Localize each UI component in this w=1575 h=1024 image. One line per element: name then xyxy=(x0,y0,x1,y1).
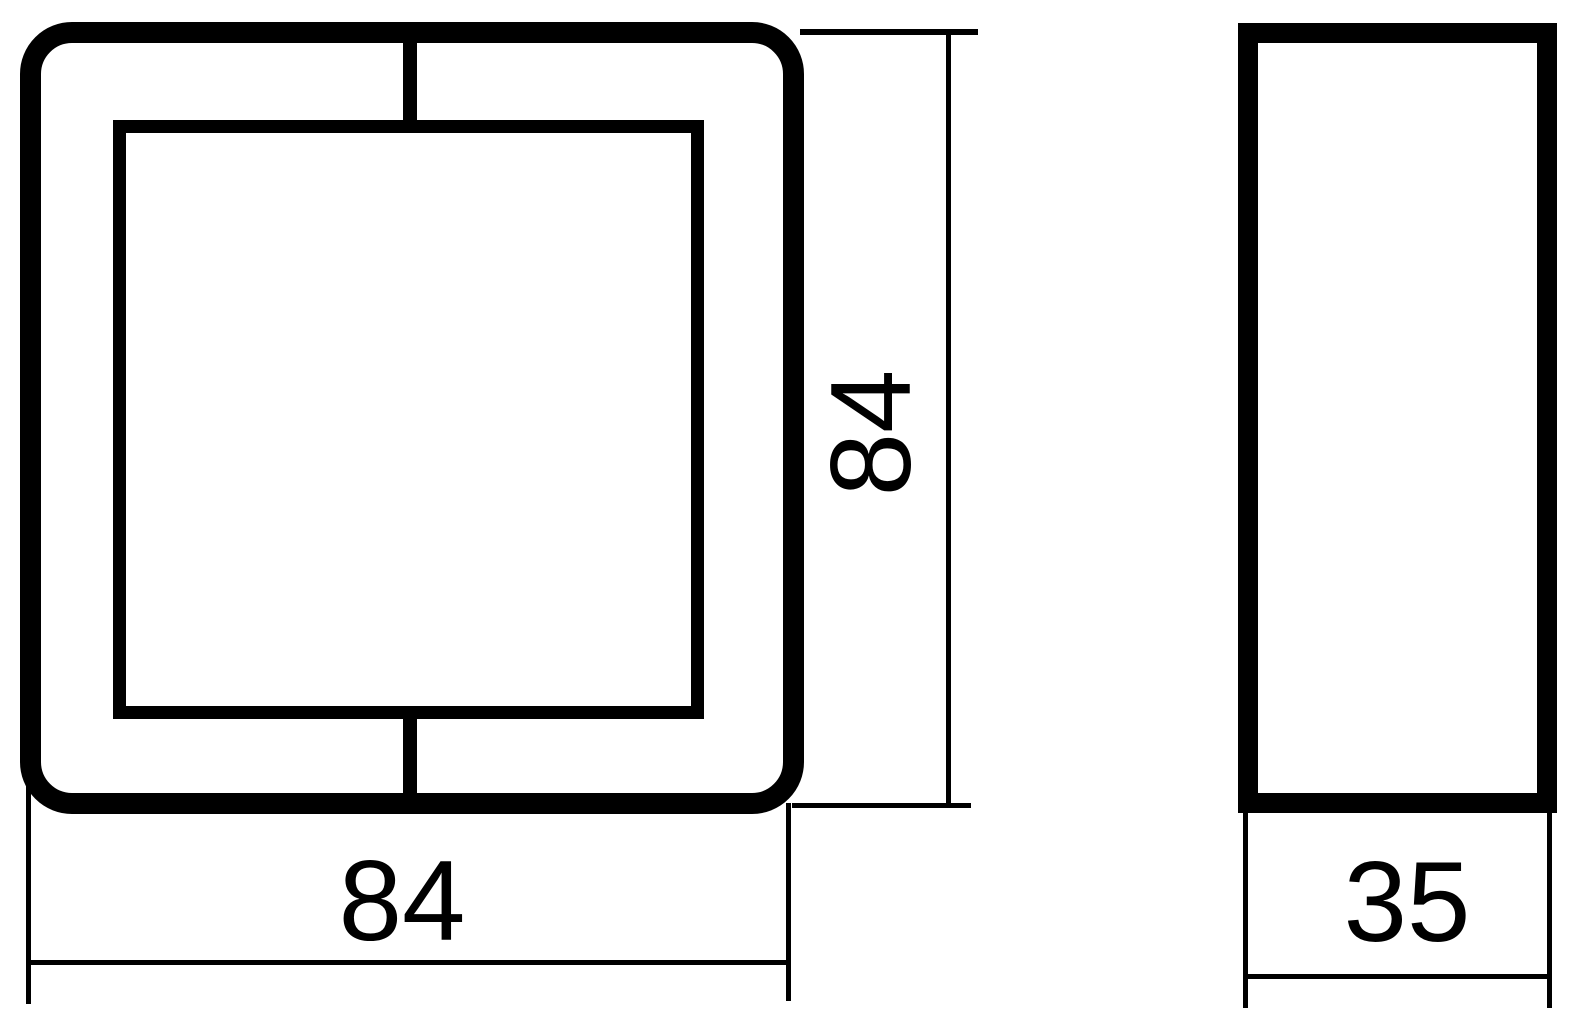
height-dimension-line xyxy=(946,29,951,808)
width-dimension-extension-line-left xyxy=(26,779,31,1004)
technical-drawing-canvas: 84 84 35 xyxy=(0,0,1575,1024)
height-dimension-label: 84 xyxy=(815,370,929,497)
width-dimension-extension-line-right xyxy=(786,803,791,1001)
front-view-bottom-seam-line xyxy=(403,715,417,801)
height-dimension-extension-line-bottom xyxy=(792,803,971,808)
depth-dimension-label: 35 xyxy=(1344,846,1471,960)
side-view-rectangle xyxy=(1238,23,1557,813)
depth-dimension-line xyxy=(1243,974,1552,979)
width-dimension-label: 84 xyxy=(339,845,466,959)
height-dimension-extension-line-top xyxy=(800,29,978,35)
front-view-inner-opening xyxy=(113,120,704,719)
front-view-top-seam-line xyxy=(403,38,417,123)
